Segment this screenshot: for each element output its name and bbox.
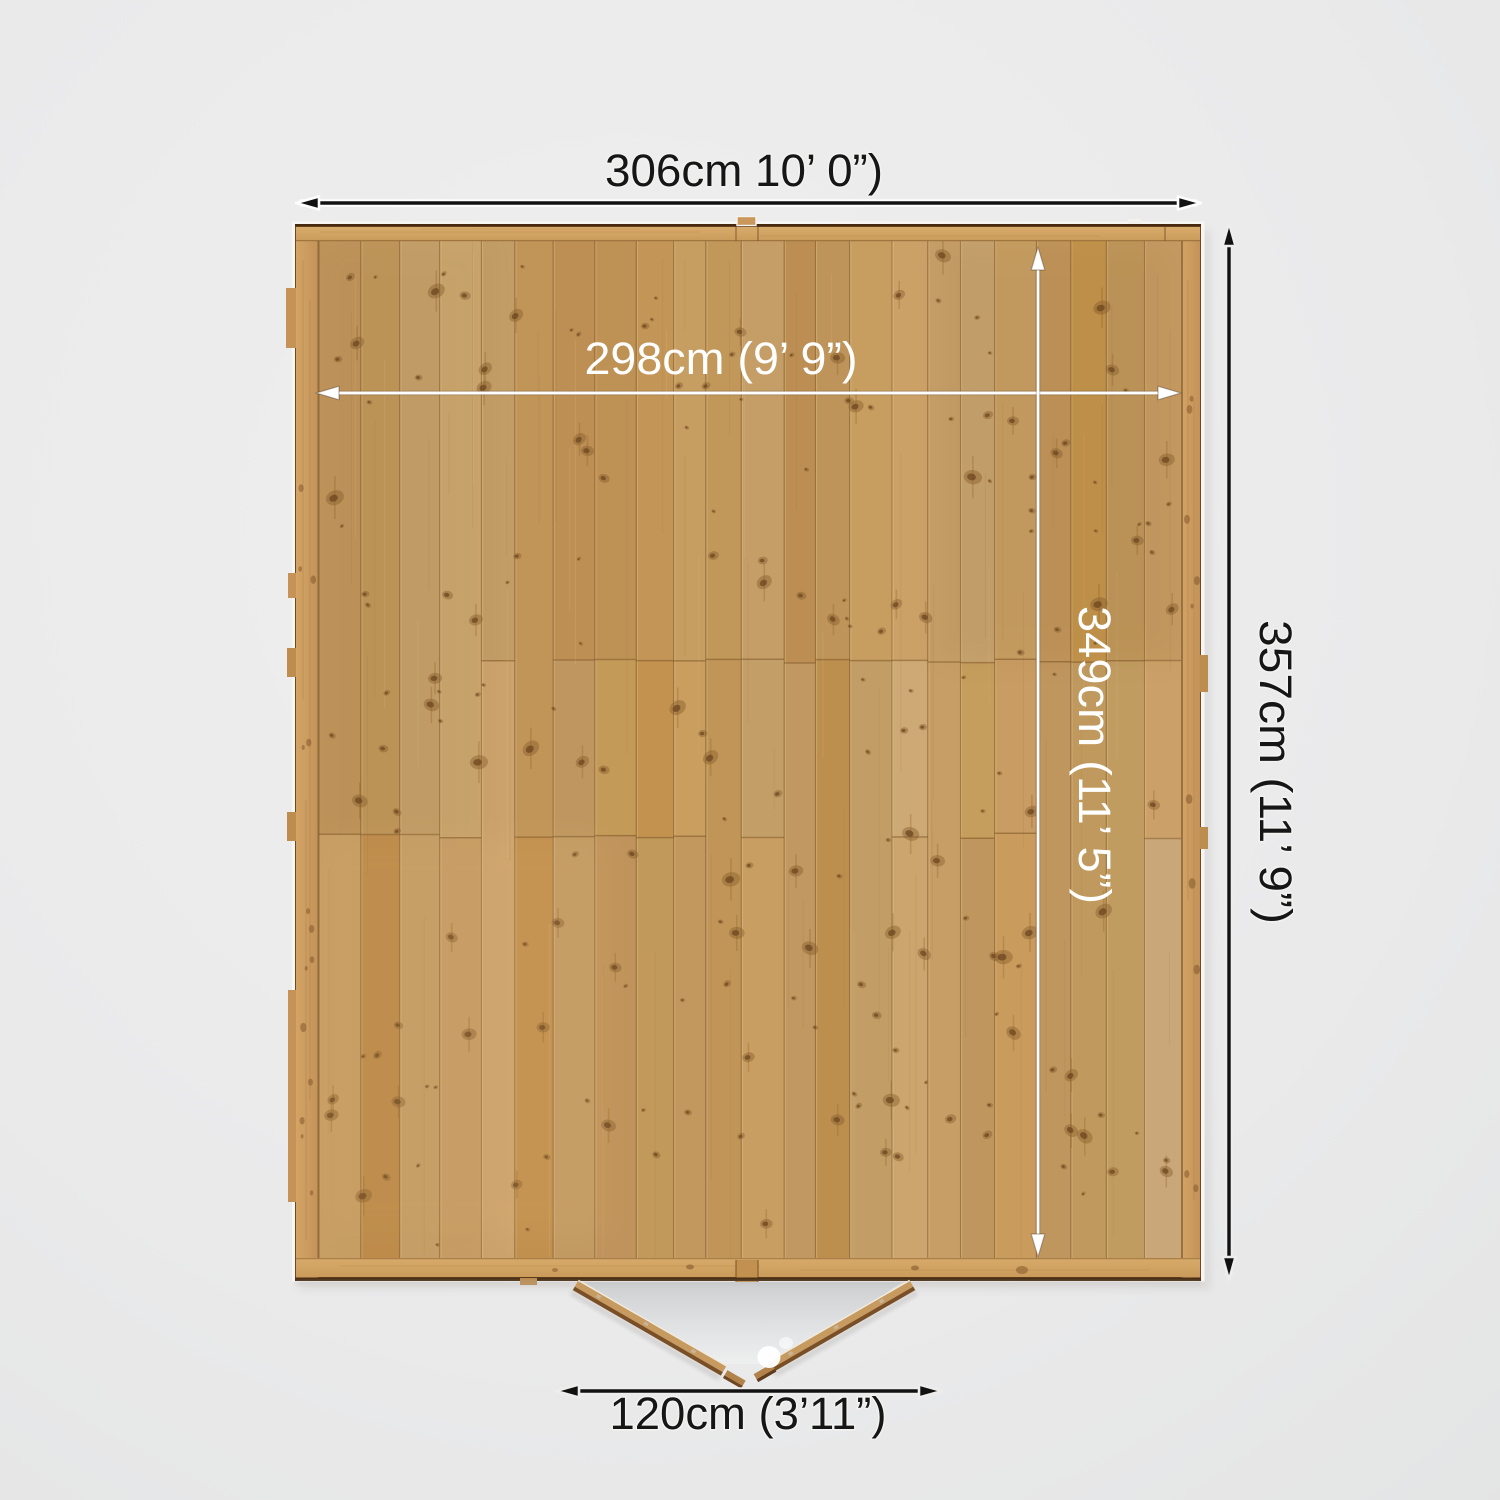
svg-text:298cm (9’ 9”): 298cm (9’ 9”)	[585, 333, 858, 384]
svg-text:120cm (3’11”): 120cm (3’11”)	[610, 1388, 887, 1439]
svg-text:357cm (11’ 9”): 357cm (11’ 9”)	[1250, 620, 1301, 924]
svg-text:349cm (11’ 5”): 349cm (11’ 5”)	[1069, 606, 1120, 904]
svg-text:306cm 10’ 0”): 306cm 10’ 0”)	[605, 145, 883, 196]
